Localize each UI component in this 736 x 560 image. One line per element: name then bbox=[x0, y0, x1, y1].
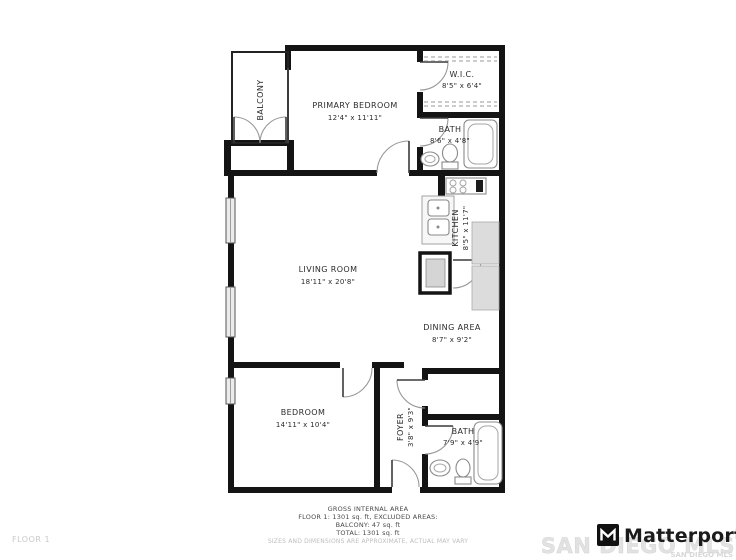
room-label-wic: W.I.C. 8'5" x 6'4" bbox=[442, 70, 482, 90]
floor-number-label: FLOOR 1 bbox=[12, 535, 50, 544]
matterport-wordmark: Matterport bbox=[624, 525, 736, 547]
room-label-kitchen: KITCHEN 8'5" x 11'7" bbox=[451, 206, 470, 251]
mls-watermark-small: SAN DIEGO MLS bbox=[670, 551, 733, 559]
sink-icon bbox=[430, 460, 450, 476]
svg-text:14'11" x 10'4": 14'11" x 10'4" bbox=[276, 421, 330, 429]
svg-text:BEDROOM: BEDROOM bbox=[281, 408, 326, 417]
floor-plan-page: PRIMARY BEDROOM 12'4" x 11'11" W.I.C. 8'… bbox=[0, 0, 736, 560]
footer-area-summary: GROSS INTERNAL AREA FLOOR 1: 1301 sq. ft… bbox=[268, 505, 468, 545]
room-label-balcony: BALCONY bbox=[256, 80, 265, 121]
sink-icon bbox=[421, 152, 439, 166]
room-label-living-room: LIVING ROOM 18'11" x 20'8" bbox=[299, 265, 358, 286]
svg-text:KITCHEN: KITCHEN bbox=[451, 209, 460, 246]
floor-plan-svg: PRIMARY BEDROOM 12'4" x 11'11" W.I.C. 8'… bbox=[0, 0, 736, 560]
matterport-logo: Matterport bbox=[597, 524, 736, 547]
svg-text:PRIMARY BEDROOM: PRIMARY BEDROOM bbox=[312, 101, 397, 110]
room-label-primary-bedroom: PRIMARY BEDROOM 12'4" x 11'11" bbox=[312, 101, 397, 122]
svg-text:12'4" x 11'11": 12'4" x 11'11" bbox=[328, 114, 382, 122]
kitchen-sink-icon bbox=[422, 196, 454, 244]
room-label-bedroom: BEDROOM 14'11" x 10'4" bbox=[276, 408, 330, 429]
svg-text:8'7" x 9'2": 8'7" x 9'2" bbox=[432, 336, 472, 344]
svg-text:8'5" x 11'7": 8'5" x 11'7" bbox=[462, 206, 470, 251]
matterport-m-icon bbox=[597, 524, 619, 546]
room-label-dining-area: DINING AREA 8'7" x 9'2" bbox=[423, 323, 481, 344]
branding: SAN DIEGO MLS Matterport SAN DIEGO MLS bbox=[541, 524, 736, 559]
walls bbox=[224, 45, 505, 493]
svg-text:LIVING ROOM: LIVING ROOM bbox=[299, 265, 358, 274]
disclaimer-text: SIZES AND DIMENSIONS ARE APPROXIMATE, AC… bbox=[268, 538, 468, 545]
svg-text:7'9" x 4'9": 7'9" x 4'9" bbox=[443, 439, 483, 447]
svg-text:BALCONY: BALCONY bbox=[256, 80, 265, 121]
svg-text:8'6" x 4'8": 8'6" x 4'8" bbox=[430, 137, 470, 145]
bathtub-icon bbox=[474, 422, 502, 484]
svg-text:DINING AREA: DINING AREA bbox=[423, 323, 481, 332]
svg-text:W.I.C.: W.I.C. bbox=[450, 70, 475, 79]
svg-text:18'11" x 20'8": 18'11" x 20'8" bbox=[301, 278, 355, 286]
kitchen-counters bbox=[472, 222, 499, 310]
stove-icon bbox=[446, 178, 486, 194]
floor-area-line: FLOOR 1: 1301 sq. ft, EXCLUDED AREAS: bbox=[298, 513, 438, 521]
svg-text:3'8" x 9'3": 3'8" x 9'3" bbox=[407, 407, 415, 447]
gross-internal-area-title: GROSS INTERNAL AREA bbox=[328, 505, 409, 513]
total-area-line: TOTAL: 1301 sq. ft bbox=[335, 529, 400, 537]
svg-text:BATH: BATH bbox=[452, 427, 475, 436]
toilet-icon bbox=[442, 144, 458, 169]
balcony-area-line: BALCONY: 47 sq. ft bbox=[336, 521, 401, 529]
svg-text:FOYER: FOYER bbox=[396, 413, 405, 441]
svg-text:8'5" x 6'4": 8'5" x 6'4" bbox=[442, 82, 482, 90]
room-label-foyer: FOYER 3'8" x 9'3" bbox=[396, 407, 415, 447]
fridge-icon bbox=[420, 253, 450, 293]
svg-text:BATH: BATH bbox=[439, 125, 462, 134]
toilet-icon bbox=[455, 459, 471, 484]
